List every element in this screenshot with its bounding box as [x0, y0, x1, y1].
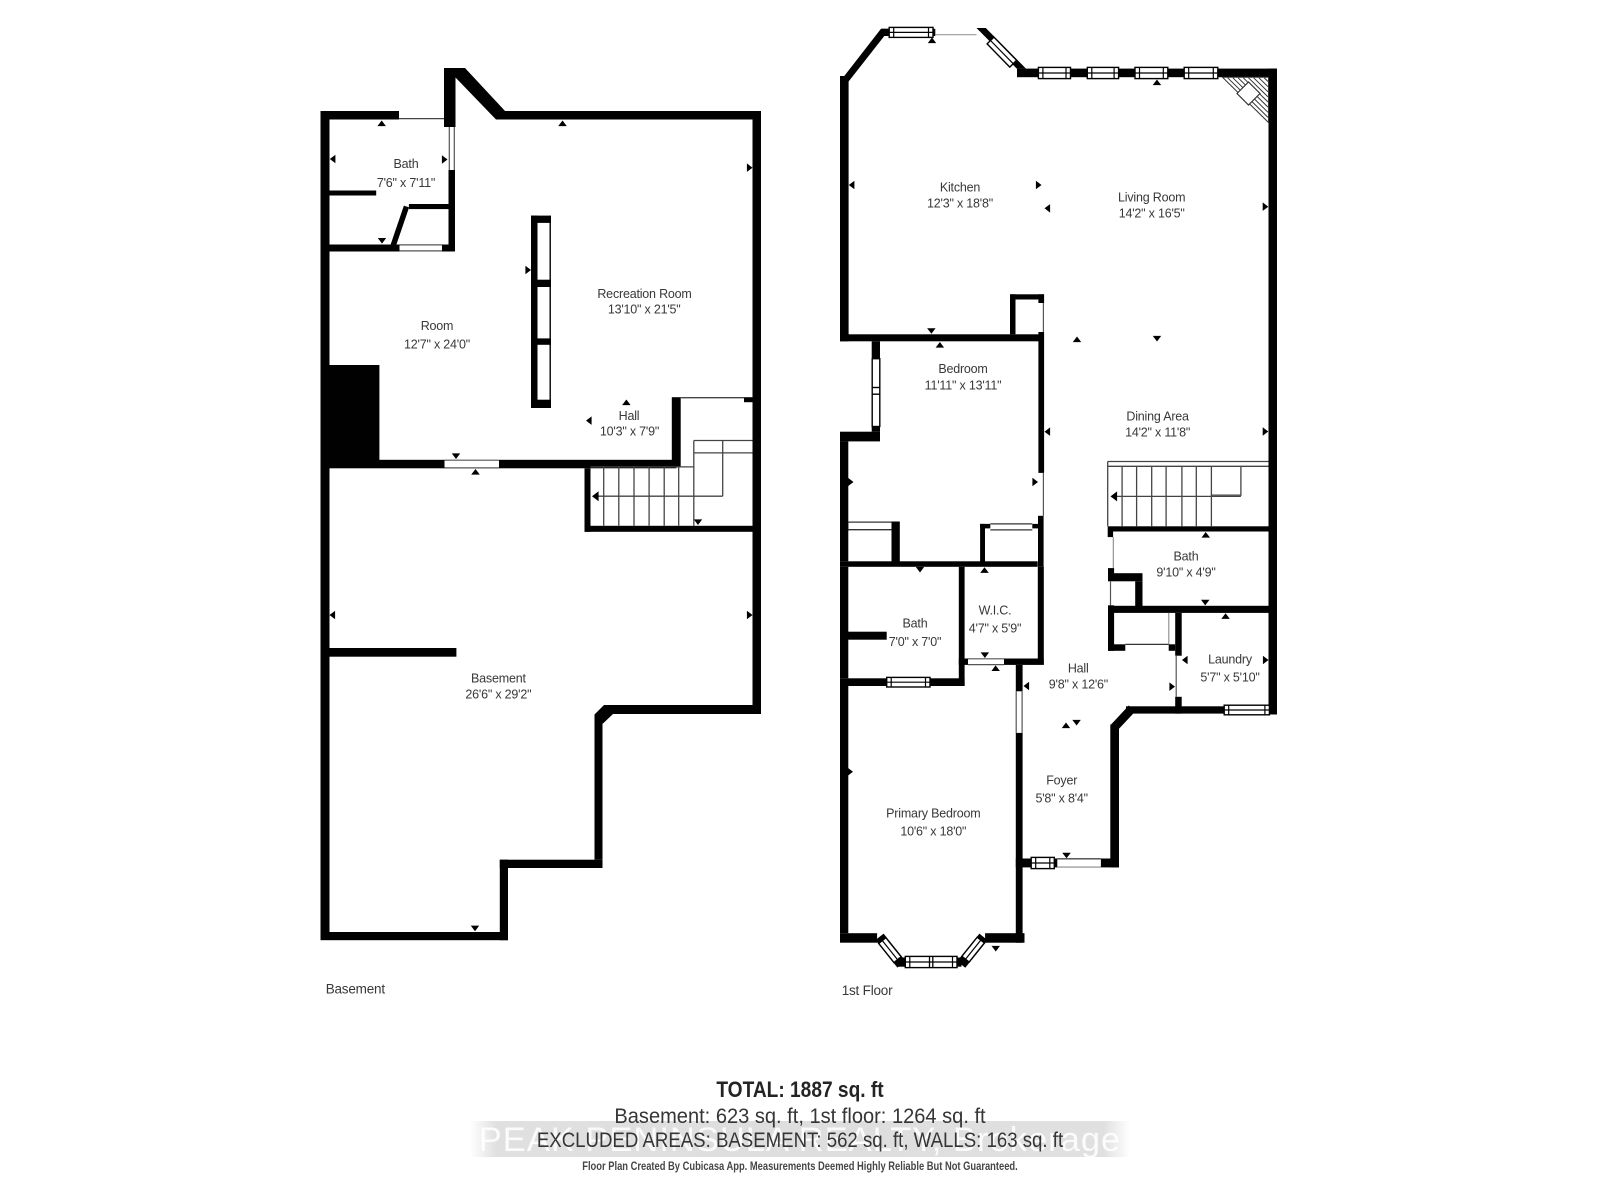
svg-text:26'6" x 29'2": 26'6" x 29'2"	[465, 688, 531, 702]
svg-text:Bedroom: Bedroom	[938, 362, 987, 376]
svg-text:W.I.C.: W.I.C.	[979, 604, 1012, 618]
svg-text:Bath: Bath	[903, 617, 928, 631]
svg-text:Bath: Bath	[394, 157, 419, 171]
svg-text:9'8" x 12'6": 9'8" x 12'6"	[1049, 678, 1108, 692]
svg-text:11'11" x 13'11": 11'11" x 13'11"	[925, 379, 1002, 393]
svg-text:Room: Room	[421, 319, 454, 333]
svg-text:Kitchen: Kitchen	[940, 181, 981, 195]
svg-text:10'3" x 7'9": 10'3" x 7'9"	[600, 425, 659, 439]
svg-text:13'10" x 21'5": 13'10" x 21'5"	[608, 303, 681, 317]
svg-text:Basement: Basement	[471, 672, 526, 686]
svg-text:7'6" x 7'11": 7'6" x 7'11"	[377, 176, 435, 190]
svg-text:Basement: Basement	[326, 982, 386, 997]
svg-text:5'8" x 8'4": 5'8" x 8'4"	[1035, 792, 1087, 806]
svg-text:12'7" x 24'0": 12'7" x 24'0"	[404, 338, 470, 352]
svg-text:10'6" x 18'0": 10'6" x 18'0"	[900, 825, 966, 839]
svg-text:4'7" x 5'9": 4'7" x 5'9"	[969, 622, 1021, 636]
svg-text:Bath: Bath	[1174, 550, 1199, 564]
svg-text:7'0" x 7'0": 7'0" x 7'0"	[889, 635, 941, 649]
svg-text:14'2" x 11'8": 14'2" x 11'8"	[1125, 426, 1190, 440]
svg-text:Recreation Room: Recreation Room	[597, 287, 691, 301]
svg-text:12'3" x 18'8": 12'3" x 18'8"	[927, 197, 993, 211]
svg-text:1st Floor: 1st Floor	[842, 983, 893, 998]
svg-text:14'2" x 16'5": 14'2" x 16'5"	[1119, 207, 1185, 221]
svg-text:Hall: Hall	[619, 409, 640, 423]
svg-text:Laundry: Laundry	[1208, 653, 1253, 667]
svg-text:5'7" x 5'10": 5'7" x 5'10"	[1200, 671, 1259, 685]
svg-text:Hall: Hall	[1068, 662, 1089, 676]
svg-text:Primary Bedroom: Primary Bedroom	[886, 807, 980, 821]
svg-text:Living Room: Living Room	[1118, 191, 1185, 205]
svg-text:Foyer: Foyer	[1046, 774, 1077, 788]
svg-text:Dining Area: Dining Area	[1126, 409, 1189, 423]
svg-text:9'10" x 4'9": 9'10" x 4'9"	[1156, 566, 1215, 580]
